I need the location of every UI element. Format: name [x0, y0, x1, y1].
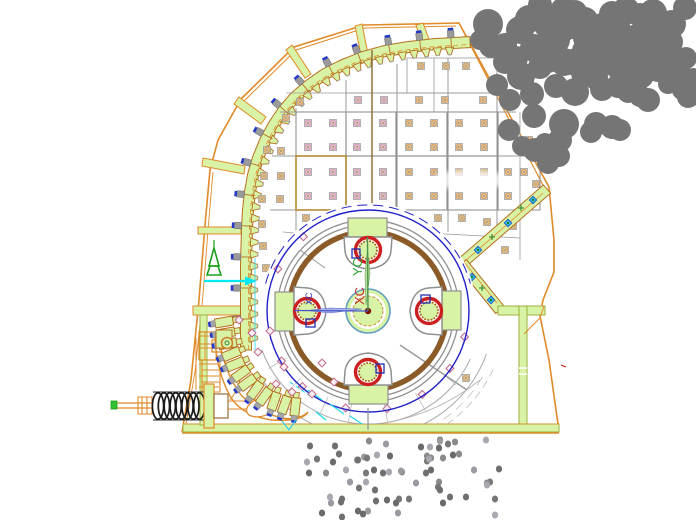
svg-text:XC: XC: [352, 287, 367, 305]
svg-text:YC: YC: [350, 258, 365, 276]
svg-text:XC: XC: [304, 292, 314, 305]
